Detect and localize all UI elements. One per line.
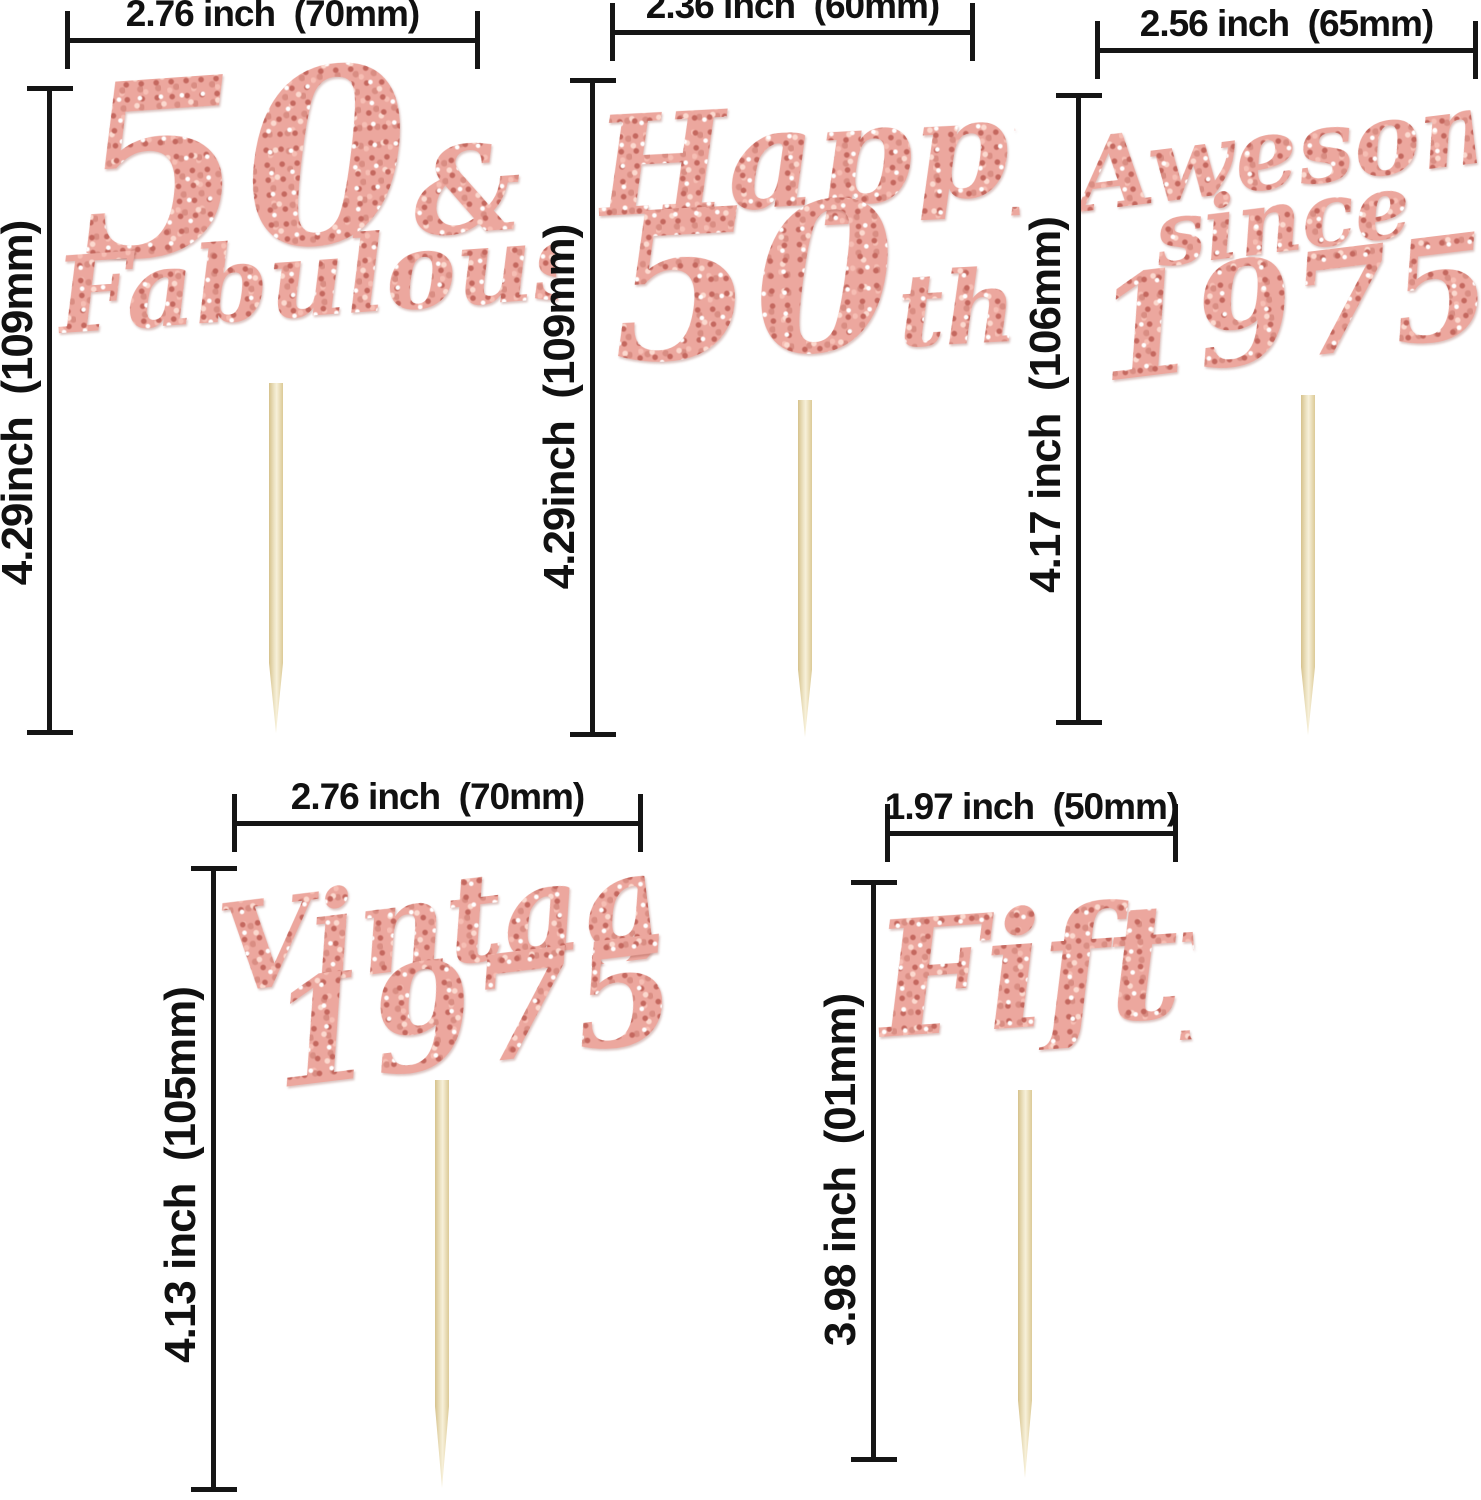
topper-awesome-since-1975: Awesome since 1975 [1070, 79, 1481, 404]
dimension-tick-right [1473, 21, 1478, 79]
toothpick-stick-happy-50th [798, 400, 812, 737]
height-dimension-line-vintage-1975 [211, 866, 216, 1492]
dimension-tick-left [65, 11, 70, 69]
topper-happy-50th: Happy 50th [593, 77, 1027, 377]
height-label-awesome-1975: 4.17 inch (106mm) [1021, 217, 1071, 593]
topper-text-th: th [895, 246, 1020, 370]
topper-text-fifty: Fifty [870, 879, 1200, 1061]
height-label-50-fabulous: 4.29inch (109mm) [0, 221, 43, 586]
height-dimension-line-happy-50th [590, 78, 595, 737]
dimension-tick-right [475, 11, 480, 69]
topper-text-fabulous: Fabulous [53, 208, 559, 349]
height-label-vintage-1975-wrap: 4.13 inch (105mm) [156, 825, 206, 1500]
dimension-tick-right [638, 794, 643, 852]
width-label-happy-50th: 2.36 inch (60mm) [646, 0, 940, 27]
width-label-fifty: 1.97 inch (50mm) [885, 786, 1179, 828]
topper-fifty: Fifty [870, 879, 1200, 1061]
width-dimension-line-fifty: 1.97 inch (50mm) [885, 831, 1178, 836]
width-dimension-line-vintage-1975: 2.76 inch (70mm) [232, 821, 643, 826]
width-dimension-line-50-fabulous: 2.76 inch (70mm) [65, 38, 480, 43]
topper-text-1975: 1975 [1086, 214, 1481, 404]
topper-text-50: 50 [605, 156, 902, 411]
product-dimension-image: 2.76 inch (70mm) 4.29inch (109mm) 50& Fa… [0, 0, 1481, 1500]
dimension-tick-right [970, 3, 975, 61]
topper-vintage-1975: Vintage 1975 [213, 837, 668, 1116]
dimension-tick-left [610, 3, 615, 61]
height-dimension-line-awesome-1975 [1076, 93, 1081, 725]
dimension-tick-left [1095, 21, 1100, 79]
toothpick-stick-awesome-1975 [1301, 395, 1315, 735]
width-label-vintage-1975: 2.76 inch (70mm) [291, 776, 585, 818]
height-label-fifty: 3.98 inch (01mm) [816, 994, 866, 1346]
width-dimension-line-happy-50th: 2.36 inch (60mm) [610, 30, 975, 35]
height-dimension-line-50-fabulous [47, 86, 52, 735]
toothpick-stick-vintage-1975 [435, 1080, 449, 1488]
height-label-50-fabulous-wrap: 4.29inch (109mm) [0, 53, 43, 753]
height-label-happy-50th: 4.29inch (109mm) [535, 225, 585, 590]
toothpick-stick-50-fabulous [269, 383, 283, 733]
toothpick-stick-fifty [1018, 1090, 1032, 1478]
width-label-50-fabulous: 2.76 inch (70mm) [126, 0, 420, 35]
height-dimension-line-fifty [871, 880, 876, 1462]
height-label-fifty-wrap: 3.98 inch (01mm) [816, 820, 866, 1500]
height-label-awesome-1975-wrap: 4.17 inch (106mm) [1021, 55, 1071, 755]
dimension-tick-left [232, 794, 237, 852]
topper-50-and-fabulous: 50& Fabulous [41, 45, 559, 349]
width-label-awesome-1975: 2.56 inch (65mm) [1140, 3, 1434, 45]
width-dimension-line-awesome-1975: 2.56 inch (65mm) [1095, 48, 1478, 53]
height-label-vintage-1975: 4.13 inch (105mm) [156, 987, 206, 1363]
height-label-happy-50th-wrap: 4.29inch (109mm) [535, 57, 585, 757]
